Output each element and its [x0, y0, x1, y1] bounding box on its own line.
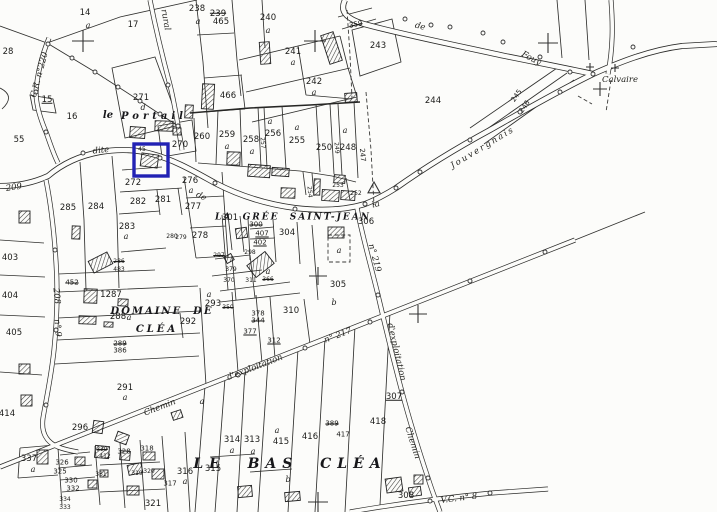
subdivision-letter-label-a: a — [266, 268, 271, 276]
parcel-number-label-15: 15 — [42, 96, 53, 105]
parcel-number-label-270: 270 — [172, 141, 188, 150]
subdivision-letter-label-a: a — [337, 247, 342, 255]
parcel-number-label-300: 300 — [249, 222, 262, 229]
parcel-number-label-271: 271 — [133, 94, 149, 103]
parcel-number-label-292: 292 — [180, 318, 196, 327]
parcel-number-label-250: 250 — [316, 144, 332, 153]
subdivision-letter-label-a: a — [230, 447, 235, 455]
parcel-number-label-312: 312 — [267, 338, 280, 345]
place-name-label-portail: Portail — [121, 112, 187, 122]
road-name-label-jouvergnais: Jouvergnais — [450, 126, 517, 171]
subdivision-letter-label-a: a — [250, 148, 255, 156]
subdivision-letter-label-a: a — [295, 124, 300, 132]
road-name-label-d-exploitation: d'exploitation — [385, 322, 407, 381]
parcel-number-label-414: 414 — [0, 410, 15, 419]
parcel-number-label-305: 305 — [330, 281, 346, 290]
road-name-label-d-exploitation: d'exploitation — [226, 353, 284, 382]
parcel-number-label-297: 297 — [213, 253, 224, 259]
parcel-number-label-334: 334 — [59, 497, 70, 503]
parcel-number-label-285: 285 — [60, 204, 76, 213]
parcel-number-label-257: 257 — [259, 137, 266, 149]
subdivision-letter-label-a: a — [123, 394, 128, 402]
parcel-number-label-256: 256 — [265, 130, 281, 139]
parcel-number-label-452: 452 — [65, 280, 78, 287]
subdivision-letter-label-b: b — [285, 476, 290, 484]
road-name-label-v-c-n-8: V.C. n° 8 — [440, 493, 478, 506]
road-name-label-n-9: n° 9 — [52, 319, 62, 338]
parcel-number-label-386: 386 — [113, 348, 126, 355]
parcel-number-label-245: 245 — [510, 89, 523, 104]
road-name-label-calvaire: Calvaire — [602, 76, 638, 85]
parcel-number-label-333: 333 — [59, 505, 70, 511]
road-name-label-de: de — [414, 22, 426, 33]
parcel-number-label-318: 318 — [140, 446, 153, 453]
parcel-number-label-417: 417 — [336, 432, 349, 439]
place-name-label-le: le — [103, 111, 113, 121]
parcel-number-label-377: 377 — [243, 329, 256, 336]
road-name-label-dite: dite — [92, 146, 109, 156]
parcel-number-label-314: 314 — [224, 436, 240, 445]
subdivision-letter-label-a: a — [31, 466, 36, 474]
parcel-number-label-296: 296 — [72, 424, 88, 433]
subdivision-letter-label-a: a — [251, 448, 256, 456]
road-name-label-c-r-n-220: C.R. n°220 — [30, 51, 50, 98]
subdivision-letter-label-a: a — [275, 427, 280, 435]
parcel-number-label-259: 259 — [219, 131, 235, 140]
parcel-number-label-308: 308 — [398, 492, 414, 501]
parcel-number-label-243: 243 — [370, 42, 386, 51]
subdivision-letter-label-a: a — [189, 187, 194, 195]
parcel-number-label-258: 258 — [243, 136, 259, 145]
parcel-number-label-415: 415 — [273, 438, 289, 447]
parcel-number-label-321: 321 — [145, 500, 161, 509]
parcel-number-label-45: 45 — [138, 147, 146, 153]
subdivision-letter-label-a: a — [343, 127, 348, 135]
parcel-number-label-238: 238 — [189, 5, 205, 14]
parcel-number-label-55: 55 — [14, 136, 25, 145]
parcel-number-label-325: 325 — [53, 469, 66, 476]
road-name-label-208: 208 — [51, 288, 61, 305]
parcel-number-label-328: 328 — [117, 449, 130, 456]
place-name-label-la-gr-e-saint-jean: LA GRÉE SAINT-JEAN — [215, 214, 371, 223]
parcel-number-label-247: 247 — [358, 148, 366, 162]
parcel-number-label-248: 248 — [340, 144, 356, 153]
parcel-number-label-350: 350 — [222, 305, 233, 311]
road-name-label-n-217: n° 217 — [323, 327, 353, 345]
parcel-number-label-241: 241 — [285, 48, 301, 57]
parcel-number-label-370: 370 — [223, 278, 234, 284]
parcel-number-label-252: 252 — [350, 191, 361, 197]
place-name-label-domaine-de: DOMAINE DE — [111, 307, 214, 317]
road-name-label-rural: rural — [159, 9, 171, 32]
parcel-number-label-317: 317 — [163, 481, 176, 488]
parcel-number-label-284: 284 — [88, 203, 104, 212]
parcel-number-label-1287: 1287 — [100, 291, 122, 300]
parcel-number-label-412: 412 — [99, 454, 110, 460]
parcel-number-label-291: 291 — [117, 384, 133, 393]
parcel-number-label-254: 254 — [306, 186, 313, 198]
parcel-number-label-331: 331 — [95, 472, 106, 478]
parcel-number-label-310: 310 — [283, 307, 299, 316]
parcel-number-label-286: 286 — [113, 259, 124, 265]
parcel-number-label-416: 416 — [302, 433, 318, 442]
parcel-number-label-277: 277 — [185, 203, 201, 212]
subdivision-letter-label-a: a — [200, 398, 205, 406]
road-name-label-la: la — [371, 200, 381, 210]
parcel-number-label-313: 313 — [244, 436, 260, 445]
parcel-number-label-359: 359 — [349, 20, 364, 30]
parcel-number-label-320: 320 — [143, 469, 154, 475]
subdivision-letter-label-a: a — [124, 233, 129, 241]
parcel-number-label-276: 276 — [182, 177, 198, 186]
subdivision-letter-label-b: b — [331, 299, 336, 307]
parcel-number-label-282: 282 — [130, 198, 146, 207]
parcel-number-label-366: 366 — [262, 277, 273, 283]
subdivision-letter-label-a: a — [183, 478, 188, 486]
parcel-number-label-16: 16 — [67, 113, 78, 122]
parcel-number-label-255: 255 — [289, 137, 305, 146]
subdivision-letter-label-a: a — [86, 22, 91, 30]
parcel-number-label-404: 404 — [2, 292, 18, 301]
road-name-label-209: 209 — [5, 183, 22, 194]
road-name-label-chemin: Chemin — [143, 398, 177, 418]
parcel-number-label-278: 278 — [192, 232, 208, 241]
parcel-number-label-330: 330 — [64, 478, 77, 485]
parcel-number-label-465: 465 — [213, 18, 229, 27]
parcel-number-label-326: 326 — [55, 460, 68, 467]
parcel-number-label-403: 403 — [2, 254, 18, 263]
parcel-number-label-304: 304 — [279, 229, 295, 238]
parcel-number-label-319: 319 — [131, 471, 142, 477]
road-name-label-fouy: Fouy — [520, 50, 542, 67]
parcel-number-label-253: 253 — [332, 183, 343, 189]
parcel-number-label-242: 242 — [306, 78, 322, 87]
parcel-number-label-402: 402 — [253, 240, 266, 247]
road-name-label-chemin: Chemin — [403, 426, 421, 460]
parcel-number-label-260: 260 — [194, 133, 210, 142]
cadastral-map-canvas[interactable]: 14a17238a239465240a359241a242a2432442452… — [0, 0, 717, 512]
parcel-number-label-405: 405 — [6, 329, 22, 338]
parcel-number-label-298: 298 — [244, 250, 255, 256]
parcel-number-label-337: 337 — [21, 455, 37, 464]
place-name-label-le-bas-cl-a: LE BAS CLÉA — [193, 457, 386, 471]
subdivision-letter-label-a: a — [266, 27, 271, 35]
parcel-number-label-244: 244 — [425, 97, 441, 106]
parcel-number-label-316: 316 — [177, 468, 193, 477]
place-name-label-cl-a: CLÉA — [136, 325, 178, 335]
subdivision-letter-label-a: a — [196, 18, 201, 26]
parcel-number-label-466: 466 — [220, 92, 236, 101]
parcel-number-label-246: 246 — [518, 100, 531, 115]
road-name-label-n-219: n° 219 — [366, 243, 382, 273]
parcel-number-label-311: 311 — [245, 278, 256, 284]
parcel-number-label-272: 272 — [125, 179, 141, 188]
parcel-number-label-483: 483 — [113, 267, 124, 273]
parcel-number-label-283: 283 — [119, 223, 135, 232]
subdivision-letter-label-a: a — [225, 143, 230, 151]
subdivision-letter-label-a: a — [312, 89, 317, 97]
parcel-number-label-14: 14 — [80, 9, 91, 18]
parcel-number-label-407: 407 — [255, 231, 268, 238]
subdivision-letter-label-a: a — [207, 291, 212, 299]
parcel-number-label-28: 28 — [3, 48, 14, 57]
parcel-number-label-279: 279 — [175, 235, 186, 241]
subdivision-letter-label-a: a — [291, 59, 296, 67]
parcel-number-label-418: 418 — [370, 418, 386, 427]
parcel-number-label-379: 379 — [225, 267, 236, 273]
parcel-number-label-307: 307 — [386, 393, 402, 402]
parcel-number-label-332: 332 — [66, 486, 79, 493]
parcel-number-label-344: 344 — [251, 318, 264, 325]
parcel-number-label-240: 240 — [260, 14, 276, 23]
parcel-number-label-389: 389 — [325, 421, 338, 428]
parcel-number-label-17: 17 — [128, 21, 139, 30]
map-labels-layer: 14a17238a239465240a359241a242a2432442452… — [0, 0, 717, 512]
parcel-number-label-249: 249 — [333, 142, 340, 154]
subdivision-letter-label-a: a — [268, 118, 273, 126]
parcel-number-label-281: 281 — [155, 196, 171, 205]
